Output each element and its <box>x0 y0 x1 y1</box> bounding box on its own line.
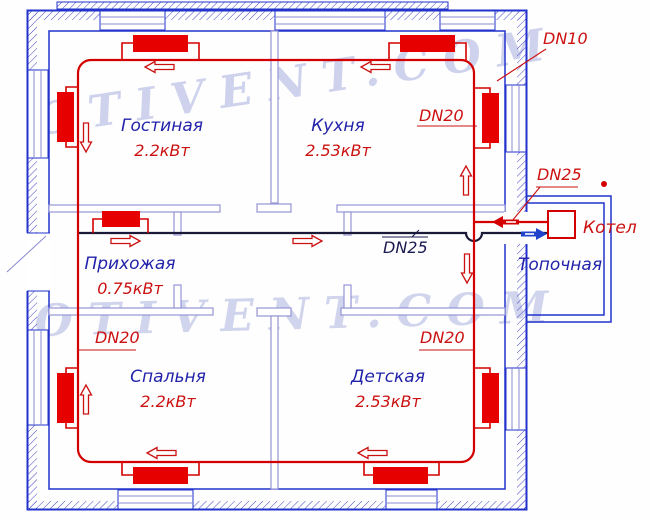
door-jamb <box>174 212 181 235</box>
eaves-strip <box>57 2 448 9</box>
floor-plan-canvas: OTIVENT.COM OTIVENT.COM <box>0 0 650 520</box>
door-jamb <box>344 212 351 235</box>
room-power-gostinaya: 2.2кВт <box>118 142 206 160</box>
window-left-1 <box>28 70 48 158</box>
window-top-2 <box>275 11 385 30</box>
room-power-prihozhaya: 0.75кВт <box>80 280 180 298</box>
boiler-symbol <box>548 211 575 238</box>
window-top-1 <box>100 11 165 30</box>
flow-arrow-left-icon <box>145 62 174 73</box>
flow-arrow-left-icon <box>358 448 387 459</box>
radiator-livingroom-top <box>133 35 188 52</box>
radiator-nursery-right <box>482 373 499 423</box>
radiator-bedroom-bottom <box>133 467 188 484</box>
radiator-nursery-bottom <box>373 467 428 484</box>
window-top-3 <box>440 11 495 30</box>
pipe-label-dn10: DN10 <box>543 30 588 48</box>
window-bottom-2 <box>386 490 437 509</box>
wall-endcap <box>257 204 291 212</box>
room-label-topochnaya: Топочная <box>512 256 608 275</box>
wall-row1-right <box>337 205 505 212</box>
wall-row2-left <box>49 308 213 315</box>
label-leaders <box>78 49 578 350</box>
pipe-label-dn25-boiler: DN25 <box>537 166 582 184</box>
radiator-kitchen-top <box>400 35 455 52</box>
radiator-kitchen-right <box>482 93 499 143</box>
room-power-spalnya: 2.2кВт <box>124 393 212 411</box>
radiator-bedroom-left <box>57 373 74 423</box>
wall-row2-right <box>341 308 505 315</box>
wall-row1-left <box>49 205 220 212</box>
door-jamb <box>344 285 351 308</box>
room-power-detskaya: 2.53кВт <box>344 393 432 411</box>
window-bottom-1 <box>118 490 193 509</box>
room-label-gostinaya: Гостиная <box>118 117 206 136</box>
flow-arrow-right-icon <box>293 236 322 247</box>
wall-endcap <box>257 308 291 316</box>
flow-arrow-down-icon <box>462 254 473 283</box>
radiator-livingroom-left <box>57 92 74 142</box>
flow-arrow-left-icon <box>361 62 390 73</box>
reference-dot <box>601 181 607 187</box>
pipe-label-dn20-kitchen: DN20 <box>419 107 464 125</box>
pipe-label-dn20-hall: DN20 <box>95 329 140 347</box>
wall-hatch-bottom <box>28 501 526 509</box>
pipe-label-dn25-return: DN25 <box>383 239 428 257</box>
pipe-label-dn20-nursery: DN20 <box>420 329 465 347</box>
wall-livingroom-kitchen <box>271 31 278 203</box>
room-label-spalnya: Спальня <box>124 368 212 387</box>
boiler-label: Котел <box>583 219 637 238</box>
window-right-2 <box>506 368 526 430</box>
radiator-hall <box>102 211 140 227</box>
flow-arrow-right-icon <box>111 236 140 247</box>
flow-arrow-left-icon <box>147 448 176 459</box>
room-label-detskaya: Детская <box>344 368 432 387</box>
room-power-kuhnya: 2.53кВт <box>294 142 382 160</box>
room-label-prihozhaya: Прихожая <box>80 255 180 274</box>
flow-arrow-up-icon <box>461 166 472 195</box>
window-left-2 <box>28 330 48 425</box>
flow-arrow-up-icon <box>81 385 92 414</box>
room-label-kuhnya: Кухня <box>294 117 382 136</box>
window-right-1 <box>506 85 526 152</box>
flow-arrow-down-icon <box>81 123 92 152</box>
entry-door <box>7 233 50 291</box>
